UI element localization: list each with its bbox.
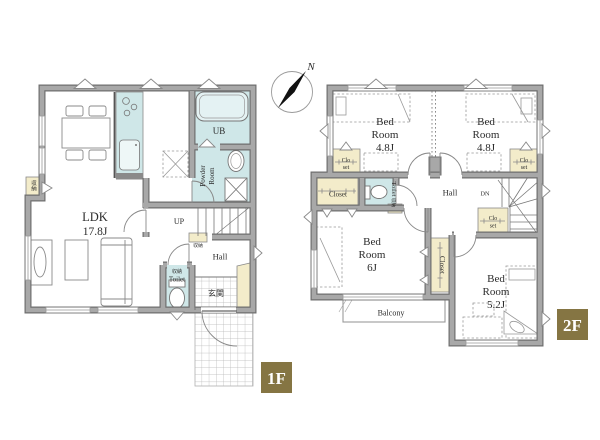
front-door-opening — [201, 307, 236, 313]
toilet-fixture-2f — [364, 186, 387, 200]
closet-mid-label-line1: Clo — [489, 216, 497, 222]
pillow-se — [509, 269, 535, 280]
stairs-dn-label: DN — [481, 191, 490, 198]
bed-nw — [333, 94, 410, 122]
toilet-storage-label-1f: 収納 — [172, 268, 182, 275]
gable-vent-icon — [365, 79, 387, 89]
desk-nw — [364, 153, 398, 171]
stairs-1f — [198, 206, 251, 236]
closet-mid-label-line2: set — [490, 224, 497, 230]
closet-door-mark-icon — [322, 209, 332, 217]
wall-vent-icon — [254, 246, 262, 260]
powder-room-label-line2: Room — [208, 167, 216, 185]
desk-ne — [467, 153, 501, 171]
floor2-plan: Bed Room 4.8J Bed Room 4.8J Bed Room 6J … — [304, 79, 588, 346]
floorplan-image: N — [0, 0, 600, 440]
tv-board — [29, 240, 52, 285]
sofa — [101, 238, 132, 306]
floor1-badge-label: 1F — [267, 369, 286, 388]
bedroom-sw-label-line1: Bed — [363, 236, 381, 248]
refrigerator-space — [163, 151, 188, 177]
gable-vent-icon — [465, 79, 487, 89]
ldk-label: LDK — [82, 210, 108, 224]
faucet-icon — [135, 144, 137, 146]
hall-label-2f: Hall — [443, 188, 458, 198]
understair-storage-label: 収納 — [193, 242, 203, 249]
closet-door-mark-icon — [420, 275, 428, 285]
floor2-badge-label: 2F — [563, 316, 582, 335]
pillow-nw — [336, 97, 346, 115]
shoe-cabinet — [237, 263, 250, 308]
future-partition-line — [432, 91, 436, 157]
powder-room-label-line1: Powder — [199, 165, 207, 187]
bedroom-nw-label-line1: Bed — [376, 116, 394, 128]
bedroom-se-size-label: 5.2J — [487, 299, 506, 311]
counter-end-panel — [116, 173, 143, 180]
toilet-storage-label-2f: 収納 — [390, 198, 397, 208]
bedroom-se-label-line1: Bed — [487, 273, 505, 285]
closet-door-mark-icon — [347, 209, 357, 217]
gable-vent-icon — [74, 79, 96, 89]
closet-door-mark-icon — [340, 142, 352, 150]
pillow-ne — [521, 98, 532, 114]
bedroom-sw-label-line2: Room — [359, 249, 386, 261]
coffee-table — [65, 240, 88, 280]
floor1-plan: LDK 17.8J UB Powder Room 収納 Toilet Hall … — [25, 79, 292, 393]
bedroom-ne-label-line1: Bed — [477, 116, 495, 128]
storage-niche-label: 収納 — [30, 180, 37, 193]
gable-vent-icon — [140, 79, 162, 89]
hall-label-1f: Hall — [213, 252, 228, 262]
toilet-label-1f: Toilet — [169, 276, 185, 284]
closet-door-mark-icon — [420, 247, 428, 257]
toilet-label-2f: Toilet — [390, 181, 397, 196]
closet-west-label: Closet — [329, 191, 347, 199]
bedroom-nw-label-line2: Room — [372, 129, 399, 141]
bedroom-nw-size-label: 4.8J — [376, 142, 395, 154]
wall-vent-icon — [542, 124, 550, 138]
closet-door-mark-icon — [520, 142, 532, 150]
corner-unit-se — [504, 311, 538, 334]
washing-machine — [225, 178, 247, 201]
closet-nw-label-line2: set — [343, 165, 350, 171]
dining-set — [62, 106, 110, 160]
closet-ne-label-line1: Clo — [520, 158, 528, 164]
compass: N — [272, 61, 316, 113]
closet-ne-label-line2: set — [521, 165, 528, 171]
bathtub — [196, 92, 248, 121]
toilet-fixture-1f — [169, 280, 185, 308]
bedroom-se-label-line2: Room — [483, 286, 510, 298]
closet-nw-label-line1: Clo — [342, 158, 350, 164]
desk-se — [463, 317, 502, 338]
closet-south-label: Closet — [438, 256, 446, 274]
gable-vent-icon — [198, 79, 220, 89]
compass-needle-icon — [278, 71, 306, 108]
washbasin — [228, 151, 244, 172]
wall-vent-icon — [542, 184, 550, 198]
balcony-label: Balcony — [378, 309, 405, 318]
bedroom-sw-size-label: 6J — [367, 262, 378, 274]
wall-vent-icon — [320, 124, 328, 138]
compass-north-label: N — [306, 61, 315, 73]
entrance-label: 玄関 — [208, 288, 224, 298]
ub-label: UB — [213, 126, 226, 136]
ldk-size-label: 17.8J — [83, 226, 108, 238]
floorplan-svg: N — [0, 0, 600, 440]
wall-vent-icon — [542, 312, 550, 326]
wall-vent-icon — [304, 210, 312, 224]
wall-vent-icon — [170, 312, 184, 320]
bedroom-ne-label-line2: Room — [473, 129, 500, 141]
bedroom-ne-size-label: 4.8J — [477, 142, 496, 154]
niche-arrow-icon — [42, 182, 52, 194]
stairs-up-label: UP — [174, 217, 185, 226]
